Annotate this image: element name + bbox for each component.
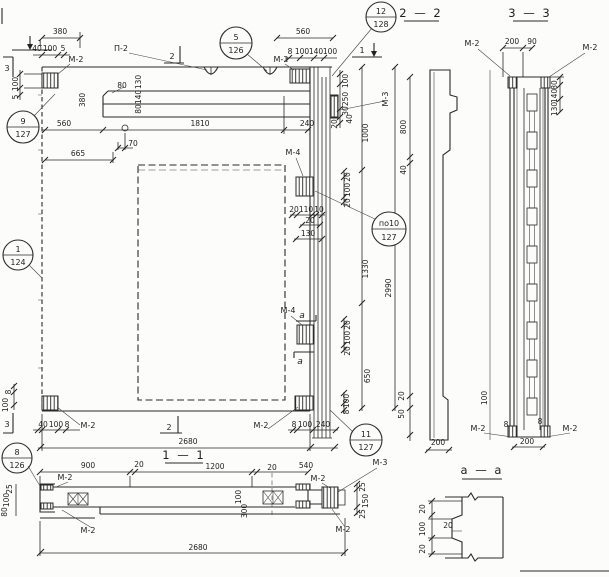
callout-num: 5 — [233, 33, 238, 42]
dim-800: 800 — [399, 120, 408, 135]
dim-80-s11l: 80 — [0, 507, 9, 517]
section-1-1: 1 — 1 900 20 1200 20 540 25 100 80 100 3… — [0, 448, 370, 556]
mark-m2-bl: М-2 — [81, 421, 96, 430]
dim-200-s33-bot: 200 — [520, 437, 535, 446]
dim-40-rt: 40 — [345, 114, 354, 124]
dim-650: 650 — [363, 369, 372, 384]
drawing-sheet: 380 40 100 5 100 5 560 8 100 140 100 80 … — [0, 0, 609, 577]
embed-plate-top-left — [42, 73, 58, 88]
dim-300-s11m: 300 — [240, 504, 249, 519]
callout-9-127: 9 127 — [7, 94, 55, 143]
dim-v100: 100 — [11, 77, 20, 92]
dim-100-s33: 100 — [480, 391, 489, 406]
dim-8-bl: 8 — [65, 420, 70, 429]
callout-po10-127: по10 127 — [315, 191, 406, 246]
embed-plate-bottom-left — [42, 396, 58, 410]
mark-m2-s33-br: М-2 — [563, 424, 578, 433]
dim-380-band: 380 — [78, 93, 87, 108]
dim-130-s33: 130 — [550, 102, 559, 117]
embed-plate-top-right — [290, 69, 310, 83]
cut-label-1: 1 — [37, 39, 42, 48]
m3-joint-block — [322, 487, 338, 508]
dim-2680-s11: 2680 — [188, 543, 207, 552]
callout-5-126: 5 126 — [220, 27, 267, 71]
section-1-1-title: 1 — 1 — [162, 448, 205, 462]
dim-100-s11l: 100 — [2, 493, 11, 508]
dim-100-s11m: 100 — [234, 490, 243, 505]
mark-m4-lower: М-4 — [281, 306, 296, 315]
dimension-lines-main — [11, 32, 413, 451]
dim-20-al2: 20 — [343, 346, 352, 356]
cut-label-2: 2 — [166, 423, 171, 432]
dim-200-s22: 200 — [431, 438, 446, 447]
dim-1200: 1200 — [205, 462, 224, 471]
dim-1000: 1000 — [361, 123, 370, 142]
dim-v100-br: 100 — [342, 394, 351, 409]
mark-m3-s11: М-3 — [373, 458, 388, 467]
mark-m3-rib: М-3 — [381, 92, 390, 107]
mark-m2-s33-right: М-2 — [583, 43, 598, 52]
dim-v8-bl: 8 — [4, 389, 13, 394]
callout-ref: 127 — [358, 443, 373, 452]
dim-50-s22b: 50 — [397, 409, 406, 419]
dim-8-br: 8 — [292, 420, 297, 429]
cut-2-top: 2 — [164, 46, 184, 63]
dim-2680-main: 2680 — [178, 437, 197, 446]
dim-110-rib: 110 — [299, 205, 314, 214]
dim-v8-br: 8 — [342, 409, 351, 414]
dim-20-saa-b: 20 — [418, 544, 427, 554]
cut-2-bottom: 2 — [160, 416, 182, 433]
cut-label-2: 2 — [169, 52, 174, 61]
dim-200-s33: 200 — [505, 37, 520, 46]
mark-m2-s11-br: М-2 — [336, 525, 351, 534]
callout-num: 8 — [14, 448, 19, 457]
callout-ref: 124 — [10, 258, 25, 267]
dim-150-s11r: 150 — [361, 494, 370, 509]
section-2-2-title: 2 — 2 — [399, 6, 442, 20]
shear-key-voids — [527, 94, 537, 415]
dim-1810: 1810 — [190, 119, 209, 128]
section-2-2: 2 — 2 200 — [399, 6, 457, 453]
dim-v100-bl: 100 — [1, 398, 10, 413]
dim-100: 100 — [43, 44, 58, 53]
dim-100-bl: 100 — [49, 420, 64, 429]
dim-380-top: 380 — [53, 27, 68, 36]
mark-m2-tl: М-2 — [69, 55, 84, 64]
dim-80-chamfer: 80 — [117, 81, 127, 90]
dim-90-s33: 90 — [527, 37, 537, 46]
dim-900: 900 — [81, 461, 96, 470]
dim-100-saa: 100 — [418, 522, 427, 537]
m3-nib-hatch — [331, 96, 338, 117]
panel-opening — [138, 165, 285, 400]
dim-80-band: 80 — [134, 104, 143, 114]
cut-label-1: 1 — [359, 46, 364, 55]
embed-symbol-left — [68, 493, 88, 505]
mark-m4-upper: М-4 — [286, 148, 301, 157]
cut-1-top-right: 1 — [352, 43, 382, 57]
dim-240-br: 240 — [316, 420, 331, 429]
dim-140: 140 — [309, 47, 324, 56]
callout-1-124: 1 124 — [3, 240, 42, 278]
dim-560-band: 560 — [57, 119, 72, 128]
embed-plate-bottom-right — [295, 396, 313, 410]
dim-665: 665 — [71, 149, 86, 158]
dim-v5: 5 — [11, 94, 20, 99]
dim-20-saa-a: 20 — [418, 504, 427, 514]
dim-80-s33: 80 — [550, 80, 559, 90]
mark-m2-tr: М-2 — [274, 55, 289, 64]
callout-num: 9 — [20, 117, 25, 126]
dim-40-s22: 40 — [399, 165, 408, 175]
dim-70: 70 — [128, 139, 138, 148]
callout-ref: 127 — [15, 130, 30, 139]
mark-m2-s11-tr: М-2 — [311, 474, 326, 483]
dim-20-s11b: 20 — [267, 463, 277, 472]
section-3-3-title: 3 — 3 — [508, 6, 551, 20]
mark-p2: П-2 — [114, 44, 128, 53]
cut-label-a: а — [297, 357, 303, 367]
dim-20-saa-depth: 20 — [443, 521, 453, 530]
cut-label-3: 3 — [4, 64, 9, 73]
dim-100-rt: 100 — [341, 74, 350, 89]
dim-8-s33r: 8 — [538, 417, 543, 426]
dim-1330: 1330 — [361, 259, 370, 278]
edge-rib — [312, 67, 332, 438]
main-elevation-view — [38, 67, 338, 438]
dim-140-band: 140 — [134, 90, 143, 105]
section-a-a: а — а 20 100 20 20 — [418, 463, 503, 561]
callout-num: 1 — [15, 245, 20, 254]
dim-20-al: 20 — [343, 320, 352, 330]
dim-100-al: 100 — [343, 331, 352, 346]
dim-5: 5 — [61, 44, 66, 53]
callout-8-126: 8 126 — [2, 443, 40, 486]
callout-ref: 128 — [373, 20, 388, 29]
m4-anchor-upper — [296, 177, 313, 196]
dim-10-rib: 10 — [314, 205, 324, 214]
dim-250: 250 — [341, 92, 350, 107]
dim-20-rib2: 20 — [305, 216, 315, 225]
mark-m2-s33-left: М-2 — [465, 39, 480, 48]
cut-3-left-bottom: 3 — [3, 413, 13, 433]
dim-20-au: 20 — [343, 172, 352, 182]
mark-m2-s33-bl: М-2 — [471, 424, 486, 433]
callout-num: по10 — [379, 219, 399, 228]
callout-ref: 126 — [228, 46, 243, 55]
cut-a-lower: а — [294, 352, 314, 367]
dim-130-rib: 130 — [301, 229, 316, 238]
drawing-canvas: 380 40 100 5 100 5 560 8 100 140 100 80 … — [0, 0, 609, 577]
dim-140-s33: 140 — [550, 89, 559, 104]
dim-560-top: 560 — [296, 27, 311, 36]
cut-label-3: 3 — [4, 420, 9, 429]
dim-240: 240 — [300, 119, 315, 128]
dim-8-s33l: 8 — [504, 420, 509, 429]
dim-540: 540 — [299, 461, 314, 470]
dim-40-bl: 40 — [38, 420, 48, 429]
dim-100b: 100 — [323, 47, 338, 56]
dim-25-s11ra: 25 — [358, 482, 367, 492]
cut-label-a: а — [299, 311, 305, 321]
mark-m2-br: М-2 — [254, 421, 269, 430]
mark-m2-s11-tl: М-2 — [58, 473, 73, 482]
lifting-notches — [204, 67, 277, 75]
dim-20-rib: 20 — [289, 205, 299, 214]
dim-100-au: 100 — [343, 183, 352, 198]
section-3-3: 3 — 3 200 90 80 140 130 100 200 8 8 — [480, 6, 564, 450]
mark-m2-s11-bl: М-2 — [81, 526, 96, 535]
dim-100-br: 100 — [298, 420, 313, 429]
cut-a-upper: а — [296, 311, 316, 321]
section-a-a-title: а — а — [461, 463, 504, 477]
dim-20-s11a: 20 — [134, 460, 144, 469]
dim-100a: 100 — [295, 47, 310, 56]
section-cut-marks: 1 1 2 2 3 3 а а — [3, 36, 382, 433]
m4-anchor-lower — [297, 325, 314, 344]
dim-20-s22b: 20 — [397, 391, 406, 401]
callout-num: 11 — [361, 430, 371, 439]
callout-ref: 127 — [381, 233, 396, 242]
embed-symbol-mid — [263, 491, 283, 504]
dim-25-s11rb: 25 — [358, 509, 367, 519]
dim-20-rt: 20 — [330, 119, 339, 129]
callout-11-127: 11 127 — [330, 410, 382, 456]
callout-num: 12 — [376, 7, 386, 16]
cut-3-left-top: 3 — [3, 57, 13, 77]
dim-130-band: 130 — [134, 75, 143, 90]
callout-ref: 126 — [9, 461, 24, 470]
dim-25-s11l: 25 — [5, 484, 14, 494]
dim-2990: 2990 — [384, 278, 393, 297]
dimension-texts-main: 380 40 100 5 100 5 560 8 100 140 100 80 … — [1, 27, 408, 446]
